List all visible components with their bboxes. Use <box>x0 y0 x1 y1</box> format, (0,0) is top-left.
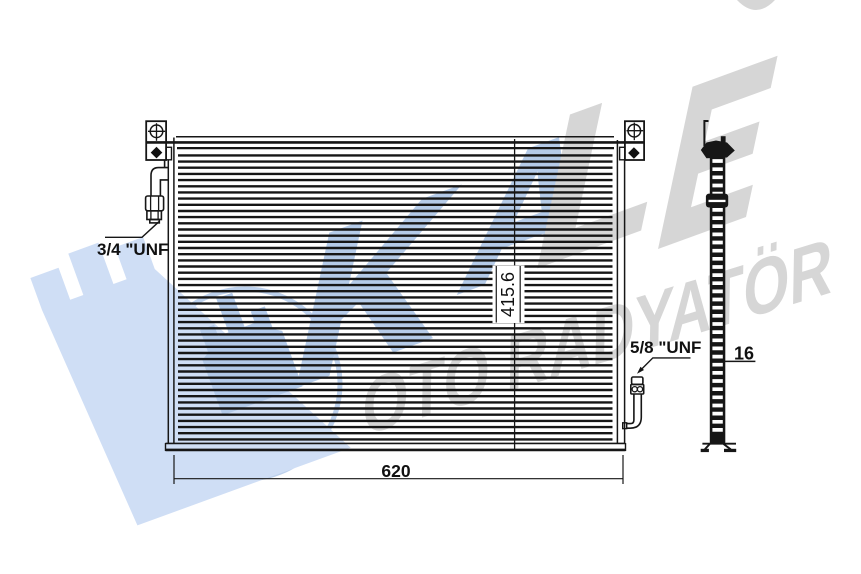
svg-text:5/8 "UNF: 5/8 "UNF <box>630 338 701 357</box>
svg-text:16: 16 <box>734 344 754 364</box>
svg-text:415.6: 415.6 <box>498 272 518 317</box>
svg-text:3/4 "UNF: 3/4 "UNF <box>97 240 168 259</box>
svg-text:620: 620 <box>381 461 410 481</box>
